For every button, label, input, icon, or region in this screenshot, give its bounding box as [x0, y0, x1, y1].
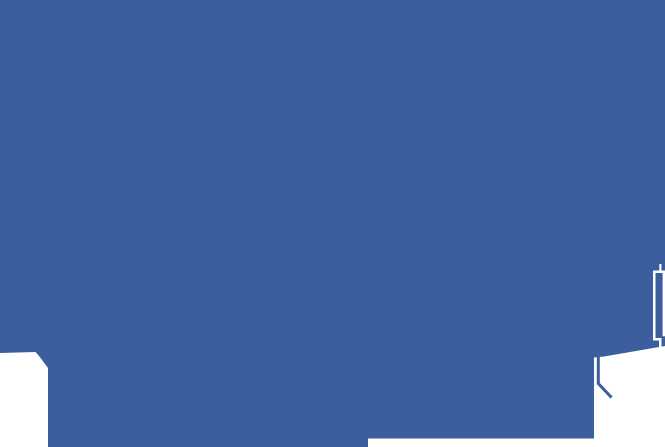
- blue-field: [0, 0, 665, 447]
- zoomed-screenshot-region: [0, 0, 665, 447]
- screenshot-canvas: [0, 0, 665, 447]
